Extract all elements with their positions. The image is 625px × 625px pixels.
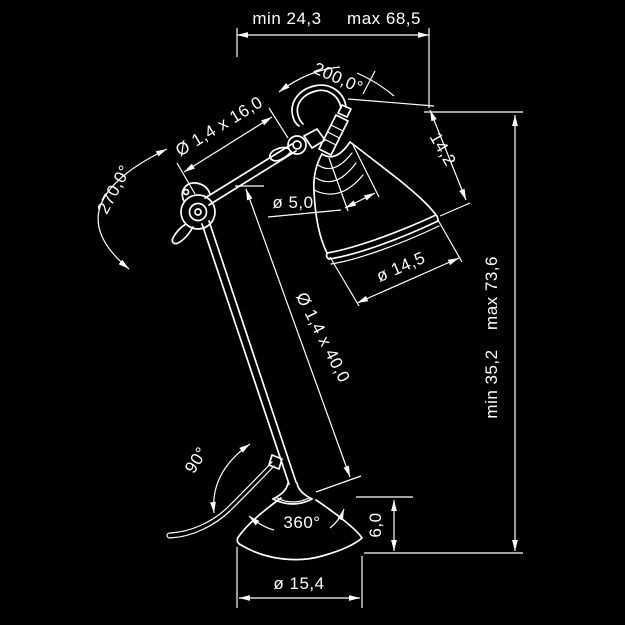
- lamp-line-art: [167, 85, 439, 559]
- dim-height-max-label: max 73,6: [482, 256, 501, 330]
- dim-head-depth: 14,2: [348, 99, 470, 216]
- dim-shade-diameter-label: ø 14,5: [374, 248, 429, 286]
- dim-base-swivel-label: 360°: [283, 513, 320, 532]
- anti-rotation-hook: [270, 148, 290, 161]
- technical-drawing-canvas: min 24,3 max 68,5 200,0° Ø 1,4 x 16,0 27…: [0, 0, 625, 625]
- dim-top-span: min 24,3 max 68,5: [237, 9, 429, 108]
- dim-base-diameter: ø 15,4: [237, 547, 362, 608]
- dim-lower-arm: Ø 1,4 x 40,0: [235, 186, 361, 492]
- dimension-annotations: min 24,3 max 68,5 200,0° Ø 1,4 x 16,0 27…: [93, 9, 523, 608]
- dim-base-diameter-label: ø 15,4: [273, 574, 324, 593]
- dim-elbow-swivel-label: 270,0°: [93, 162, 134, 217]
- dim-head-depth-label: 14,2: [426, 129, 460, 169]
- dim-base-height: 6,0: [356, 497, 413, 551]
- shade: [314, 142, 439, 264]
- dim-top-max-label: max 68,5: [347, 9, 421, 28]
- lamp-technical-drawing: min 24,3 max 68,5 200,0° Ø 1,4 x 16,0 27…: [0, 0, 625, 625]
- dim-arm-pivot: 90°: [181, 444, 250, 513]
- dim-base-height-label: 6,0: [366, 512, 385, 537]
- dim-arm-pivot-label: 90°: [181, 444, 212, 477]
- dim-lower-arm-label: Ø 1,4 x 40,0: [292, 289, 354, 386]
- dim-head-swivel: 200,0°: [279, 59, 394, 98]
- dim-elbow-swivel: 270,0°: [93, 149, 167, 269]
- dim-shade-neck-label: ø 5,0: [272, 193, 313, 212]
- dim-height-min-label: min 35,2: [482, 349, 501, 418]
- dim-height-span: min 35,2 max 73,6: [364, 112, 523, 553]
- dim-upper-arm: Ø 1,4 x 16,0: [172, 92, 288, 194]
- dim-top-min-label: min 24,3: [252, 9, 321, 28]
